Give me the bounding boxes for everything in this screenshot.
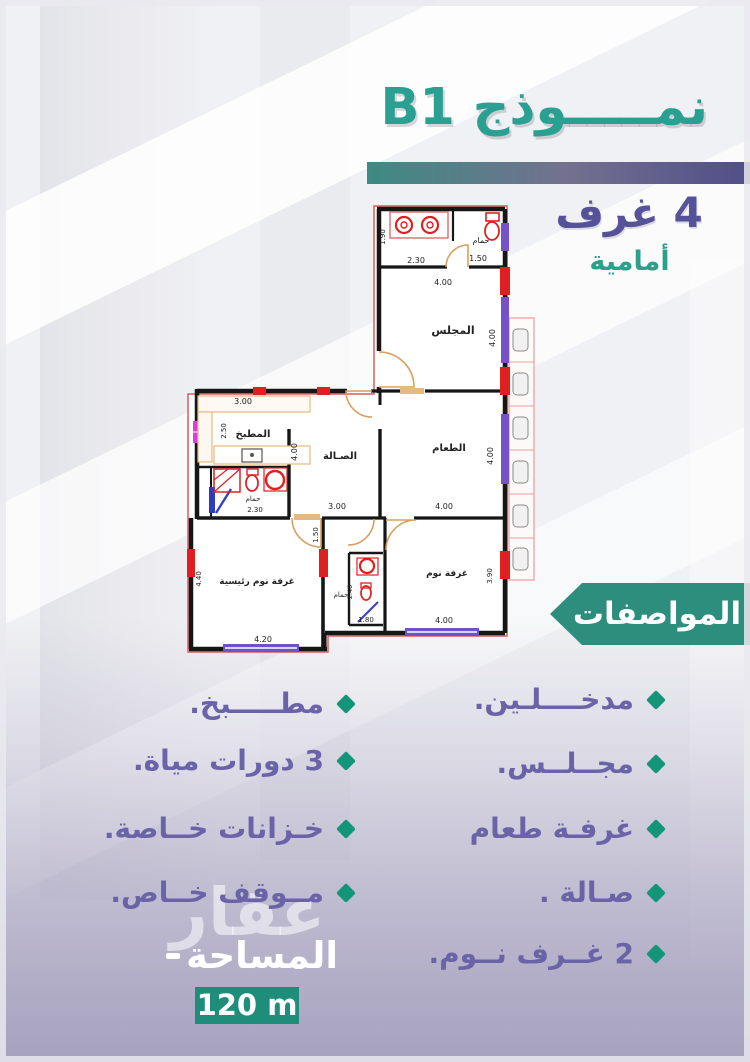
feature-kitchen: مطـــــبخ. xyxy=(189,687,353,720)
diamond-bullet-icon xyxy=(646,754,666,774)
diamond-bullet-icon xyxy=(336,694,356,714)
balcony-units xyxy=(509,318,534,580)
feature-hall: صـالة . xyxy=(539,876,663,909)
svg-text:4.00: 4.00 xyxy=(435,502,453,511)
feature-three-bathrooms: 3 دورات مياة. xyxy=(133,744,353,777)
title-divider-bar xyxy=(367,162,750,184)
model-title: نمـــــوذج B1 xyxy=(388,78,708,137)
diamond-bullet-icon xyxy=(646,690,666,710)
feature-majlis: مجــلــس. xyxy=(497,747,663,780)
svg-text:1.50: 1.50 xyxy=(312,527,320,543)
rooms-count: 4 غرف xyxy=(534,188,724,237)
svg-text:3.00: 3.00 xyxy=(234,397,252,406)
bedroom-label: غرفة نوم xyxy=(426,569,468,579)
svg-text:2.30: 2.30 xyxy=(247,506,263,514)
rooms-position: أمامية xyxy=(547,246,712,277)
majlis-label: المجلس xyxy=(431,324,474,337)
feature-dining-room: غرفـة طعام xyxy=(470,812,663,845)
svg-text:3.00: 3.00 xyxy=(328,502,346,511)
diamond-bullet-icon xyxy=(646,819,666,839)
svg-text:3.90: 3.90 xyxy=(486,568,494,584)
svg-text:4.20: 4.20 xyxy=(254,635,272,644)
svg-text:4.00: 4.00 xyxy=(290,443,299,461)
svg-text:4.00: 4.00 xyxy=(488,329,497,347)
svg-text:1.50: 1.50 xyxy=(469,254,487,263)
svg-text:1.80: 1.80 xyxy=(358,616,374,624)
feature-private-closets: خـزانات خــاصة. xyxy=(104,812,353,845)
dining-label: الطعام xyxy=(432,443,466,454)
svg-text:2.40: 2.40 xyxy=(346,585,354,599)
real-estate-flyer: نمـــــوذج B1 4 غرف أمامية xyxy=(0,0,750,1062)
kitchen-label: المطبخ xyxy=(236,429,271,440)
kitchen-bath-label: حمام xyxy=(246,495,261,503)
floor-plan: حمام 2.30 1.50 1.90 4.00 المجلس 4.00 3.0… xyxy=(181,202,537,654)
feature-private-parking: مــوقف خــاص. xyxy=(110,876,353,909)
svg-text:4.00: 4.00 xyxy=(434,278,452,287)
bath-top-label: حمام xyxy=(473,236,490,245)
feature-two-bedrooms: 2 غــرف نــوم. xyxy=(428,937,663,970)
diamond-bullet-icon xyxy=(646,944,666,964)
feature-two-entrances: مدخــــلـين. xyxy=(474,683,663,716)
svg-text:4.00: 4.00 xyxy=(435,616,453,625)
specs-banner: المواصفات xyxy=(550,583,750,645)
diamond-bullet-icon xyxy=(336,819,356,839)
hall-label: الصـالة xyxy=(323,451,357,462)
area-label: المساحة xyxy=(166,934,338,977)
diamond-bullet-icon xyxy=(336,751,356,771)
diamond-bullet-icon xyxy=(646,883,666,903)
area-value-badge: 120 m xyxy=(195,987,299,1024)
svg-text:2.30: 2.30 xyxy=(407,256,425,265)
diamond-bullet-icon xyxy=(336,883,356,903)
svg-text:1.90: 1.90 xyxy=(379,229,387,245)
svg-text:4.40: 4.40 xyxy=(195,571,203,587)
dash-icon xyxy=(166,953,180,959)
master-bedroom-label: غرفة نوم رئيسية xyxy=(219,577,295,587)
svg-text:4.00: 4.00 xyxy=(486,447,495,465)
svg-text:2.50: 2.50 xyxy=(220,423,228,439)
